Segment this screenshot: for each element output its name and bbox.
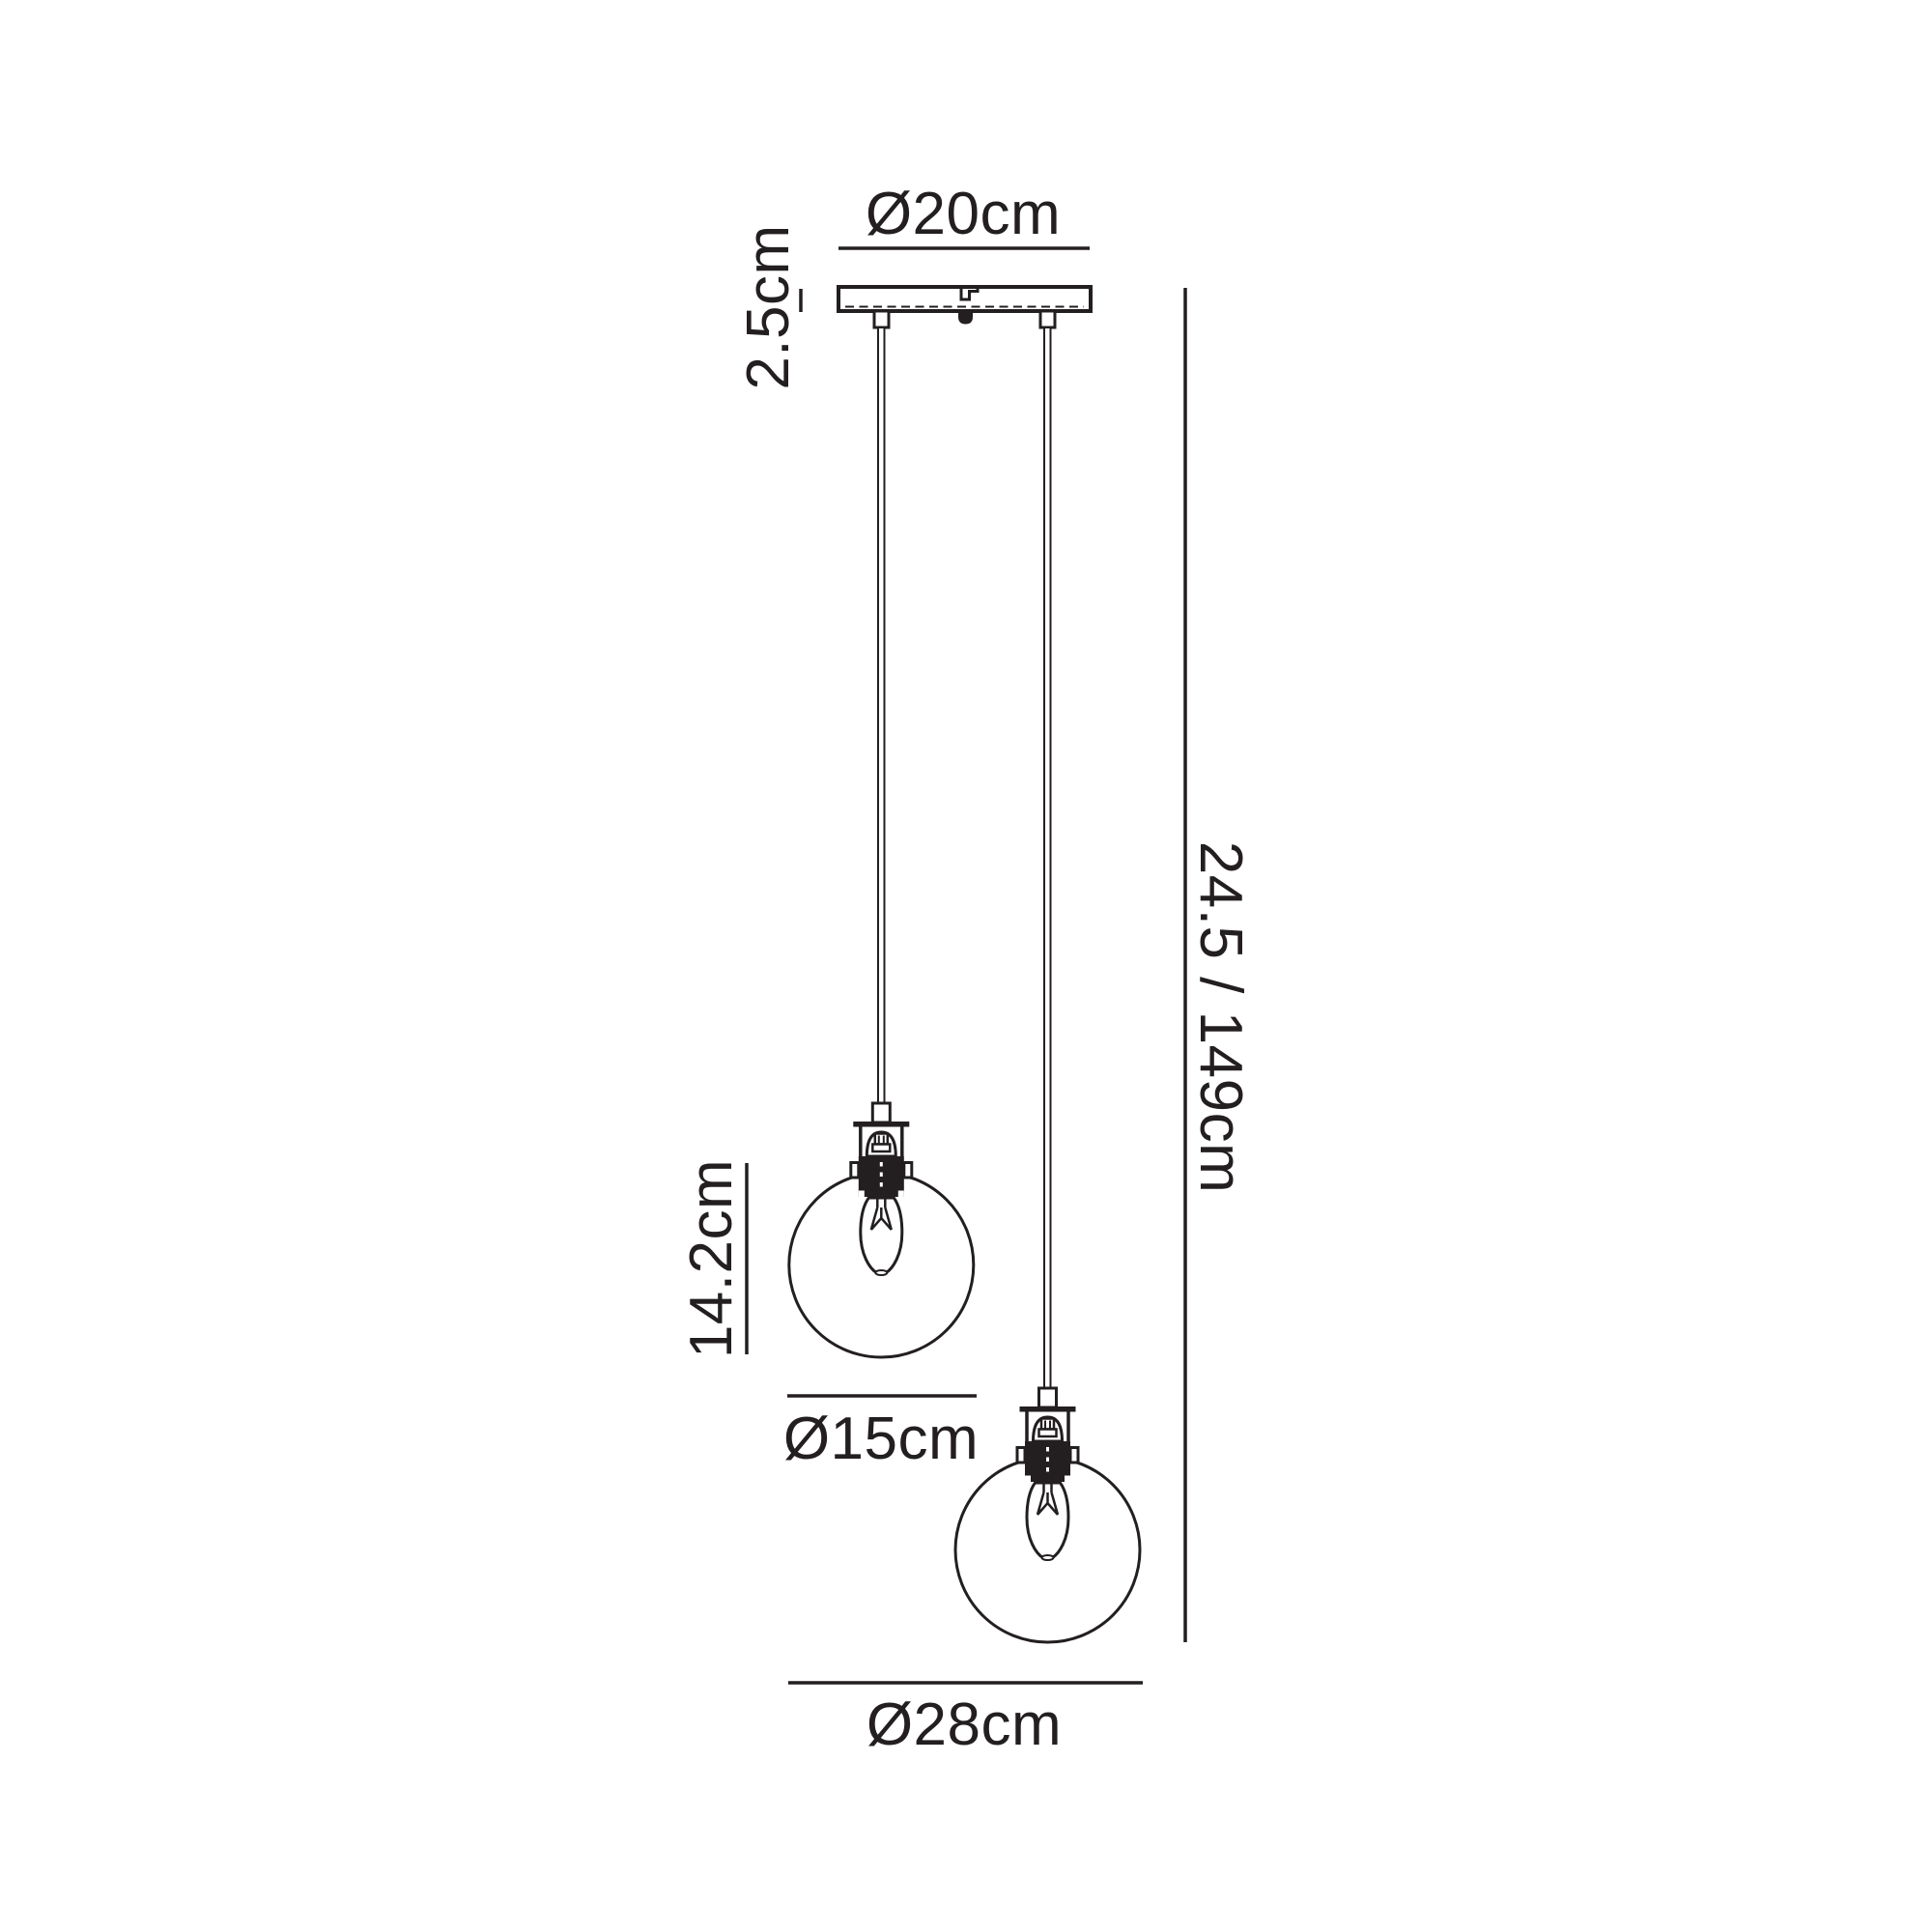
dimension-diagram: Ø20cm 2.5cm 24.5 / 149cm 14.2cm Ø15cm Ø2…	[0, 0, 1932, 1932]
label-canopy-depth: 2.5cm	[735, 224, 802, 389]
pendant-small	[789, 1103, 974, 1357]
cord-right	[1044, 327, 1051, 1388]
label-drop-min-max: 24.5 / 149cm	[1187, 841, 1254, 1193]
label-globe-diameter: Ø15cm	[783, 1406, 979, 1472]
label-shade-height: 14.2cm	[678, 1159, 745, 1358]
label-canopy-diameter: Ø20cm	[866, 181, 1061, 247]
ceiling-canopy	[838, 287, 1091, 327]
cord-anchor-right	[1040, 311, 1055, 327]
cord-left	[878, 327, 885, 1103]
label-overall-spread: Ø28cm	[867, 1691, 1062, 1758]
canopy-screw	[958, 311, 973, 325]
pendant-large	[955, 1388, 1140, 1642]
cord-anchor-left	[874, 311, 889, 327]
